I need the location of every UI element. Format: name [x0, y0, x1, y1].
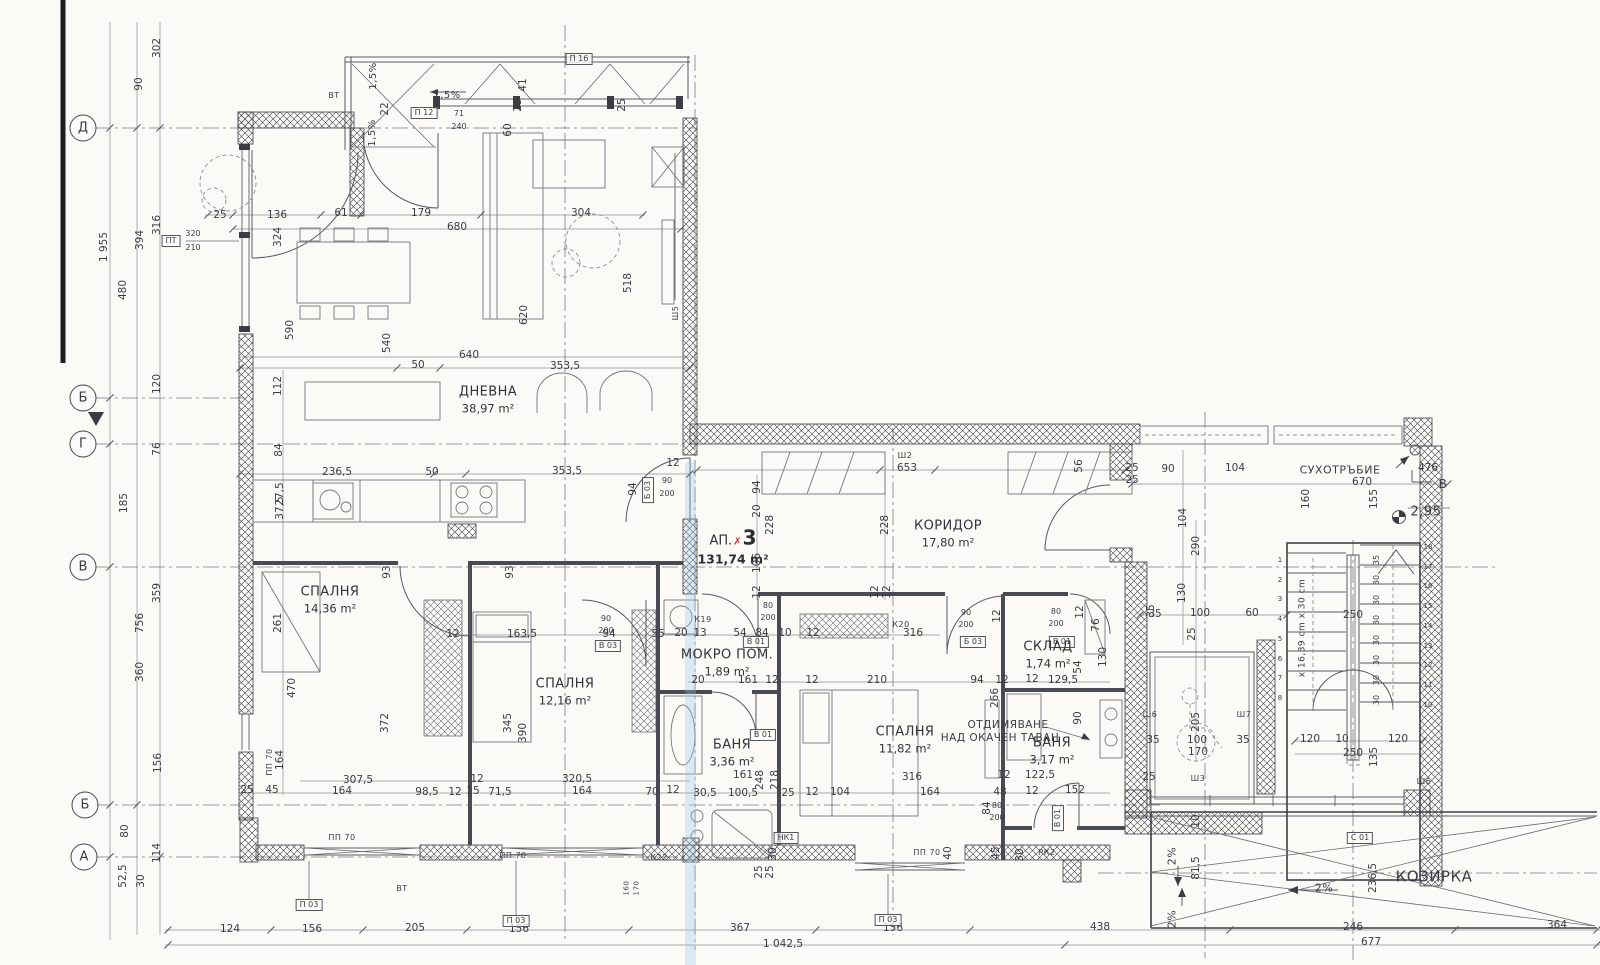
- stair-riser-dim: 30: [1373, 655, 1381, 665]
- room-name: БАНЯ: [709, 738, 754, 753]
- apartment-label: АП.: [709, 534, 732, 549]
- room-label: СКЛАД1,74 m²: [1023, 640, 1072, 671]
- dimension-label: 25: [617, 98, 628, 111]
- grid-marker-Б: Б: [70, 385, 97, 412]
- room-name: ДНЕВНА: [459, 385, 517, 400]
- dimension-tick: [317, 211, 325, 219]
- room-name: БАНЯ: [1029, 736, 1074, 751]
- dimension-tick: [1593, 941, 1600, 949]
- dimension-tick: [106, 124, 114, 132]
- stair-riser-dim: 30: [1373, 615, 1381, 625]
- grid-marker-Д: Д: [70, 115, 97, 142]
- dimension-tick: [436, 364, 444, 372]
- dimension-label: 266: [990, 688, 1001, 708]
- component-tag: П 12: [411, 107, 438, 119]
- dimension-label: 13: [693, 628, 706, 639]
- dimension-label: 12: [997, 770, 1010, 781]
- annotation-label: К19: [694, 616, 711, 624]
- dimension-label: 680: [447, 222, 467, 233]
- dimension-label: 246: [1343, 922, 1363, 933]
- dimension-label: 22: [380, 102, 391, 115]
- dimension-label: 540: [382, 333, 393, 353]
- component-tag: П 16: [566, 53, 593, 65]
- stair-riser-dim: 30: [1373, 695, 1381, 705]
- dimension-label: 228: [880, 515, 891, 535]
- dimension-label: 324: [273, 227, 284, 247]
- dimension-label: 152: [1065, 785, 1085, 796]
- dimension-label: 90: [1161, 464, 1174, 475]
- dimension-label: 25: [754, 865, 765, 878]
- annotation-label: ПП 70: [266, 748, 274, 775]
- dimension-label: 12: [666, 458, 679, 469]
- dimension-label: 80: [1051, 608, 1061, 616]
- dimension-label: 100: [1190, 608, 1210, 619]
- dimension-tick: [106, 801, 114, 809]
- room-area: 1,74 m²: [1023, 657, 1072, 671]
- stair-step-number: 3: [1278, 595, 1282, 603]
- room-label: БАНЯ3,17 m²: [1029, 736, 1074, 767]
- dimension-label: 12: [1025, 786, 1038, 797]
- dimension-label: 30,5: [693, 788, 716, 799]
- dimension-label: 210: [185, 244, 200, 252]
- dimension-label: 161: [733, 770, 753, 781]
- dimension-label: 185: [119, 493, 130, 513]
- grid-marker-В: В: [70, 554, 97, 581]
- dimension-label: 25: [213, 210, 226, 221]
- dimension-label: 163,5: [507, 629, 537, 640]
- annotation-label: х 16,39 cm х 30 cm: [1299, 579, 1308, 678]
- stair-step-number: 6: [1278, 655, 1282, 663]
- dimension-label: 364: [1547, 920, 1567, 931]
- dimension-label: 10: [1335, 734, 1348, 745]
- dimension-label: 394: [135, 230, 146, 250]
- component-tag: Б 03: [960, 636, 986, 648]
- dimension-label: 10: [778, 628, 791, 639]
- stair-step-number: 7: [1278, 674, 1282, 682]
- dimension-label: 200: [760, 614, 775, 622]
- dimension-tick: [625, 926, 633, 934]
- room-name: СПАЛНЯ: [301, 585, 360, 600]
- dimension-label: 25: [781, 788, 794, 799]
- annotation-label: ПП 70: [499, 852, 526, 860]
- dimension-tick: [236, 470, 244, 478]
- stair-step-number: 15: [1424, 602, 1433, 610]
- dimension-label: 677: [1361, 937, 1381, 948]
- dimension-label: 12: [882, 585, 893, 598]
- dimension-label: 80: [120, 824, 131, 837]
- stair-riser-dim: 35: [1373, 555, 1381, 565]
- dimension-label: 124: [220, 924, 240, 935]
- dimension-label: 71: [454, 110, 464, 118]
- annotation-label: К20: [892, 621, 909, 629]
- stair-step-number: 8: [1278, 694, 1282, 702]
- room-label: БАНЯ3,36 m²: [709, 738, 754, 769]
- dimension-tick: [106, 563, 114, 571]
- dimension-label: 60: [503, 123, 514, 136]
- dimension-label: 30: [1015, 848, 1026, 861]
- annotation-label: ВТ: [328, 92, 339, 100]
- grid-marker-Б: Б: [72, 792, 99, 819]
- apartment-number: 3: [743, 526, 757, 550]
- dimension-label: 320,5: [562, 774, 592, 785]
- dimension-label: 250: [1343, 748, 1363, 759]
- annotation-label: 1,5%: [368, 119, 378, 146]
- dimension-label: 353,5: [552, 466, 582, 477]
- dimension-label: 200: [1048, 620, 1063, 628]
- dimension-label: 12: [1025, 674, 1038, 685]
- dimension-label: 367: [730, 923, 750, 934]
- dimension-label: 12: [448, 787, 461, 798]
- dimension-label: 93: [382, 565, 393, 578]
- dimension-label: 35: [1146, 735, 1159, 746]
- dimension-label: 345: [503, 713, 514, 733]
- dimension-tick: [1136, 611, 1144, 619]
- stair-step-number: 12: [1424, 661, 1433, 669]
- dimension-tick: [1291, 737, 1299, 745]
- dimension-tick: [686, 470, 694, 478]
- room-label: СПАЛНЯ12,16 m²: [536, 677, 595, 708]
- annotation-label: 1,5%: [433, 91, 460, 101]
- dimension-label: 84: [274, 443, 285, 456]
- dimension-label: 670: [1352, 477, 1372, 488]
- component-tag: П 03: [296, 899, 323, 911]
- dimension-label: 359: [152, 583, 163, 603]
- component-tag: П 03: [875, 914, 902, 926]
- dimension-label: 90: [601, 615, 611, 623]
- dimension-tick: [1061, 941, 1069, 949]
- dimension-label: 12: [446, 629, 459, 640]
- dimension-label: 205: [405, 923, 425, 934]
- dimension-label: 90: [961, 609, 971, 617]
- room-area: 17,80 m²: [914, 536, 982, 550]
- dimension-label: 12: [805, 787, 818, 798]
- dimension-label: 210: [867, 675, 887, 686]
- dimension-label: 200: [598, 627, 613, 635]
- dimension-label: 100,5: [728, 788, 758, 799]
- dimension-label: 80: [763, 602, 773, 610]
- room-area: 38,97 m²: [459, 402, 517, 416]
- dimension-label: 98,5: [415, 787, 438, 798]
- dimension-label: 104: [1225, 463, 1245, 474]
- dimension-tick: [1226, 926, 1234, 934]
- stair-step-number: 18: [1424, 543, 1433, 551]
- room-label: ДНЕВНА38,97 m²: [459, 385, 517, 416]
- dimension-label: 218: [770, 770, 781, 790]
- dimension-label: 12: [752, 585, 763, 598]
- room-name: СПАЛНЯ: [876, 725, 935, 740]
- dimension-label: 12: [870, 585, 881, 598]
- dimension-label: 320: [185, 230, 200, 238]
- dimension-label: 100: [1187, 735, 1207, 746]
- dimension-label: 316: [902, 772, 922, 783]
- annotation-label: К22: [650, 854, 667, 862]
- stair-step-number: 17: [1424, 563, 1433, 571]
- dimension-label: 12: [666, 785, 679, 796]
- dimension-label: 164: [920, 787, 940, 798]
- dimension-label: 20: [674, 628, 687, 639]
- grid-marker-А: А: [71, 844, 98, 871]
- dimension-label: 76: [152, 442, 163, 455]
- dimension-tick: [267, 926, 275, 934]
- dimension-label: 620: [519, 305, 530, 325]
- dimension-label: 316: [152, 215, 163, 235]
- dimension-label: 136: [267, 210, 287, 221]
- room-label: МОКРО ПОМ.1,89 m²: [681, 648, 773, 679]
- room-area: 1,89 m²: [681, 665, 773, 679]
- dimension-tick: [931, 466, 939, 474]
- dimension-label: 80: [992, 802, 1002, 810]
- dimension-tick: [229, 211, 237, 219]
- dimension-label: 160: [1301, 489, 1312, 509]
- dimension-label: 756: [135, 613, 146, 633]
- dimension-tick: [229, 225, 237, 233]
- stair-step-number: 4: [1278, 615, 1282, 623]
- dimension-label: 304: [571, 208, 591, 219]
- room-name: СКЛАД: [1023, 640, 1072, 655]
- dimension-label: 236,5: [322, 467, 352, 478]
- component-tag: В 03: [595, 640, 621, 652]
- dimension-tick: [639, 211, 647, 219]
- stair-step-number: 14: [1424, 622, 1433, 630]
- component-tag: В 01: [1052, 805, 1064, 831]
- annotation-label: ПП 70: [328, 834, 355, 842]
- dimension-label: 90: [134, 77, 145, 90]
- dimension-label: 76: [1091, 618, 1102, 631]
- stair-riser-dim: 30: [1373, 675, 1381, 685]
- dimension-label: 12: [1075, 605, 1086, 618]
- dimension-label: 205: [1191, 712, 1202, 732]
- room-label: СПАЛНЯ11,82 m²: [876, 725, 935, 756]
- dimension-tick: [1593, 926, 1600, 934]
- dimension-label: 61: [334, 208, 347, 219]
- room-area: 12,16 m²: [536, 694, 595, 708]
- dimension-tick: [966, 926, 974, 934]
- dimension-label: 250: [1343, 610, 1363, 621]
- dimension-label: 200: [958, 621, 973, 629]
- dimension-label: 156: [153, 753, 164, 773]
- dimension-label: 106: [752, 553, 763, 573]
- dimension-label: 480: [118, 280, 129, 300]
- room-label: СПАЛНЯ14,36 m²: [301, 585, 360, 616]
- dimension-label: 120: [1300, 734, 1320, 745]
- dimension-label: 93: [505, 565, 516, 578]
- dimension-label: 302: [152, 38, 163, 58]
- dimension-tick: [133, 124, 141, 132]
- dimension-label: 120: [152, 374, 163, 394]
- annotation-label: 170: [634, 881, 641, 896]
- dimension-label: 37,5: [275, 496, 286, 519]
- stair-step-number: 2: [1278, 576, 1282, 584]
- dimension-label: 130: [1098, 647, 1109, 667]
- dimension-label: 52,5: [118, 864, 129, 887]
- dimension-label: 35: [1146, 604, 1157, 617]
- component-tag: С 01: [1347, 832, 1373, 844]
- dimension-tick: [164, 941, 172, 949]
- dimension-label: 25: [1142, 772, 1155, 783]
- component-tag: Б 03: [642, 477, 654, 503]
- stair-riser-dim: 30: [1373, 575, 1381, 585]
- dimension-label: 122,5: [1025, 770, 1055, 781]
- annotation-label: 2,95: [1411, 506, 1442, 519]
- dimension-label: 164: [572, 786, 592, 797]
- room-area: 3,36 m²: [709, 755, 754, 769]
- stair-step-number: 11: [1424, 681, 1433, 689]
- stair-step-number: 10: [1424, 701, 1433, 709]
- dimension-label: 155: [1369, 489, 1380, 509]
- dimension-label: 81,5: [1191, 856, 1202, 879]
- dimension-tick: [164, 926, 172, 934]
- annotation-label: ОТДИМЯВАНЕ: [967, 720, 1048, 731]
- room-label: КОРИДОР17,80 m²: [914, 519, 982, 550]
- dimension-label: 164: [332, 786, 352, 797]
- dimension-label: 35: [1236, 735, 1249, 746]
- dimension-label: 129,5: [1048, 675, 1078, 686]
- annotation-label: КОЗИРКА: [1396, 870, 1473, 885]
- dimension-label: 438: [1090, 922, 1110, 933]
- annotation-label: СУХОТРЪБИЕ: [1300, 465, 1381, 476]
- dimension-tick: [359, 926, 367, 934]
- dimension-tick: [156, 124, 164, 132]
- dimension-label: 156: [302, 924, 322, 935]
- dimension-label: 94: [970, 675, 983, 686]
- dimension-tick: [1419, 737, 1427, 745]
- dimension-tick: [462, 470, 470, 478]
- dimension-label: 104: [830, 787, 850, 798]
- dimension-label: 45: [991, 846, 1002, 859]
- dimension-label: 12: [470, 774, 483, 785]
- dimension-label: 290: [1191, 536, 1202, 556]
- annotation-label: 2%: [1167, 910, 1178, 928]
- dimension-tick: [463, 926, 471, 934]
- component-tag: П 03: [503, 915, 530, 927]
- dimension-label: 70: [645, 787, 658, 798]
- dimension-tick: [477, 211, 485, 219]
- dimension-label: 94: [752, 480, 763, 493]
- dimension-label: 12: [992, 609, 1003, 622]
- dimension-label: 71,5: [488, 787, 511, 798]
- dimension-label: 130: [1177, 583, 1188, 603]
- dimension-label: 54: [1073, 660, 1084, 673]
- dimension-label: 25: [240, 785, 253, 796]
- dimension-label: 15: [466, 786, 479, 797]
- dimension-label: 48: [993, 787, 1006, 798]
- dimension-tick: [1451, 926, 1459, 934]
- dimension-label: 640: [459, 350, 479, 361]
- annotation-label: 2%: [1315, 883, 1333, 894]
- dimension-label: 25: [1187, 627, 1198, 640]
- dimension-tick: [677, 225, 685, 233]
- red-mark: ✗: [733, 537, 741, 548]
- dimension-tick: [393, 364, 401, 372]
- dimension-label: 40: [943, 846, 954, 859]
- room-name: МОКРО ПОМ.: [681, 648, 773, 663]
- dimension-label: 56: [1074, 459, 1085, 472]
- component-tag: В 01: [743, 636, 769, 648]
- stair-step-number: 13: [1424, 642, 1433, 650]
- dimension-label: 112: [273, 376, 284, 396]
- dimension-label: 104: [1178, 508, 1189, 528]
- dimension-label: 12: [995, 675, 1008, 686]
- dimension-tick: [876, 466, 884, 474]
- dimension-label: 518: [623, 273, 634, 293]
- dimension-tick: [106, 440, 114, 448]
- labels-layer: АП.✗3 131,74 m² 302901 95539431648012076…: [0, 0, 1600, 965]
- dimension-label: 55: [651, 629, 664, 640]
- dimension-label: 94: [628, 482, 639, 495]
- dimension-label: 372: [380, 713, 391, 733]
- dimension-label: 12: [806, 628, 819, 639]
- room-name: СПАЛНЯ: [536, 677, 595, 692]
- dimension-label: 90: [1073, 711, 1084, 724]
- component-tag: ПТ: [162, 235, 181, 247]
- dimension-label: 1 042,5: [763, 939, 803, 950]
- dimension-label: 120: [1388, 734, 1408, 745]
- component-tag: НК1: [774, 832, 799, 844]
- annotation-label: Ш2: [898, 452, 913, 460]
- dimension-label: 353,5: [550, 361, 580, 372]
- annotation-label: Ш5: [672, 306, 680, 321]
- dimension-label: 261: [273, 613, 284, 633]
- dimension-tick: [236, 364, 244, 372]
- dimension-label: 228: [765, 515, 776, 535]
- dimension-label: 170: [1188, 747, 1208, 758]
- floor-plan-canvas: .w{fill:url(#h);stroke:#3f3f47;stroke-wi…: [0, 0, 1600, 965]
- dimension-label: 50: [411, 360, 424, 371]
- stair-step-number: 16: [1424, 582, 1433, 590]
- dimension-label: 200: [659, 490, 674, 498]
- dimension-label: 164: [275, 750, 286, 770]
- stair-riser-dim: 30: [1373, 595, 1381, 605]
- dimension-tick: [812, 926, 820, 934]
- room-area: 3,17 m²: [1029, 753, 1074, 767]
- annotation-label: Ш6: [1143, 711, 1158, 719]
- room-area: 11,82 m²: [876, 742, 935, 756]
- dimension-label: 45: [265, 785, 278, 796]
- annotation-label: 160: [624, 881, 631, 896]
- dimension-tick: [1283, 611, 1291, 619]
- annotation-label: Ш3: [1191, 775, 1206, 783]
- dimension-label: 390: [518, 723, 529, 743]
- dimension-label: 90: [662, 477, 672, 485]
- dimension-tick: [133, 801, 141, 809]
- annotation-label: Ш7: [1237, 711, 1252, 719]
- dimension-label: 10: [1191, 814, 1202, 827]
- dimension-label: 476: [1418, 463, 1438, 474]
- grid-marker-Г: Г: [70, 431, 97, 458]
- room-name: КОРИДОР: [914, 519, 982, 534]
- stair-riser-dim: 30: [1373, 635, 1381, 645]
- dimension-tick: [106, 853, 114, 861]
- annotation-label: 1,5%: [369, 62, 379, 89]
- dimension-label: 20: [752, 504, 763, 517]
- dimension-label: 30: [136, 874, 147, 887]
- dimension-label: 236,5: [1368, 863, 1379, 893]
- dimension-label: 200: [989, 814, 1004, 822]
- dimension-label: 135: [1369, 747, 1380, 767]
- dimension-label: 41: [518, 78, 529, 91]
- annotation-label: ПП 70: [913, 849, 940, 857]
- dimension-label: 316: [903, 628, 923, 639]
- dimension-label: 25: [513, 98, 524, 111]
- dimension-label: 1 955: [99, 232, 110, 262]
- dimension-label: 307,5: [343, 775, 373, 786]
- annotation-label: РК2: [1038, 849, 1055, 857]
- stair-step-number: 1: [1278, 556, 1282, 564]
- dimension-label: 12: [805, 675, 818, 686]
- dimension-label: 470: [287, 678, 298, 698]
- dimension-tick: [357, 211, 365, 219]
- dimension-label: 360: [135, 662, 146, 682]
